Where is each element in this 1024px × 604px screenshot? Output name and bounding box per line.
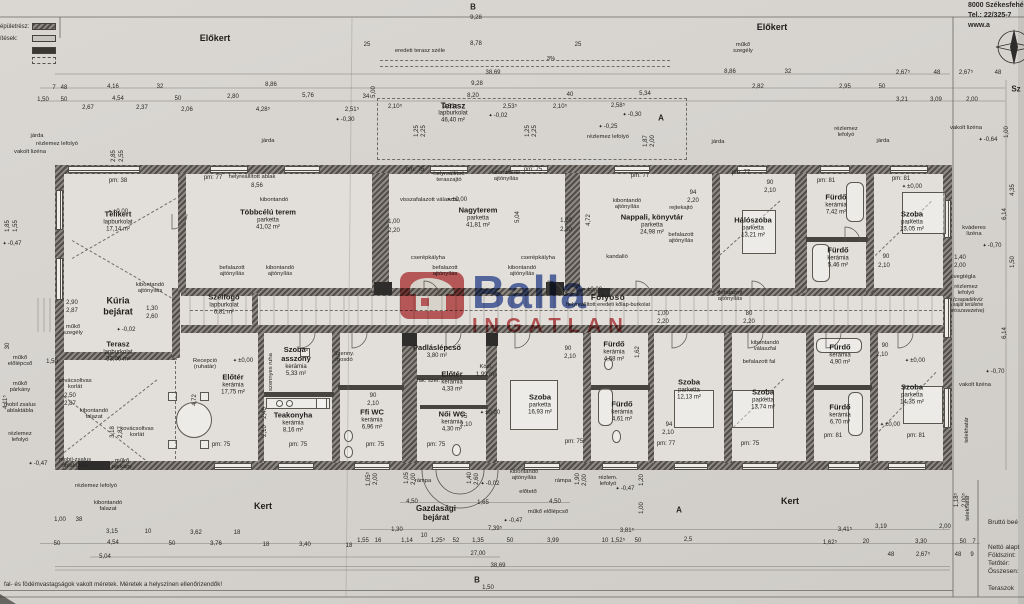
dimension-label: -0,47	[616, 486, 635, 492]
annotation-label: szennyes ruha	[268, 353, 274, 391]
room-name: Nappali, könyvtár	[621, 214, 684, 223]
room-area: 14,35 m²	[900, 399, 924, 406]
wall-segment	[402, 333, 417, 463]
room-area: 3,80 m²	[413, 353, 461, 360]
summary-row: Földszint:	[988, 552, 1016, 560]
room-area: 13,74 m²	[751, 404, 775, 411]
dimension-label: 6,14	[1002, 208, 1008, 220]
furniture	[344, 446, 353, 458]
dimension-label: 3,21	[896, 97, 908, 103]
room-label: Szoba- asszonykerámia5,33 m²	[281, 346, 311, 378]
room-label: Padláslépcső3,80 m²	[413, 344, 461, 360]
dimension-label: 1,40	[467, 472, 473, 484]
furniture	[200, 392, 209, 401]
annotation-label: helyreállított teraszajtó	[433, 171, 464, 184]
watermark-brand: Balla	[472, 272, 630, 313]
dimension-label: 2,87	[118, 426, 124, 438]
door-arc	[752, 281, 767, 296]
room-name: Kúria bejárat	[103, 295, 133, 316]
room-area: 6,81 m²	[208, 309, 239, 316]
dimension-label: 2,67	[82, 105, 94, 111]
watermark-text: Balla INGATLAN	[472, 272, 630, 338]
room-finish: parketta	[751, 397, 775, 404]
room-finish: kerámia	[441, 379, 462, 386]
dimension-label: 75	[461, 414, 468, 420]
dimension-label: 2,67⁵	[916, 552, 930, 558]
legend-swatch-solid	[32, 47, 56, 54]
room-name: Előtér	[441, 371, 462, 380]
room-area: 4,30 m²	[439, 426, 466, 433]
room-finish: lapburkolat	[103, 219, 132, 226]
room-finish: kerámia	[360, 417, 384, 424]
legend-label-existing: épületrész:	[0, 24, 29, 30]
outdoor-name: Előkert	[757, 22, 788, 32]
dimension-label: 1,50	[37, 97, 49, 103]
room-label: Nagyteremparketta41,81 m²	[459, 207, 498, 230]
room-area: 33,06 m²	[103, 356, 132, 363]
window	[888, 463, 926, 470]
dimension-label: 6,14	[1002, 327, 1008, 339]
dimension-label: 2,00	[939, 524, 951, 530]
dimension-label: pm: 81	[892, 176, 910, 182]
room-finish: lapburkolat	[208, 302, 239, 309]
dimension-label: -0,30	[623, 112, 642, 118]
furniture	[316, 398, 327, 409]
dimension-label: 4,50	[406, 499, 418, 505]
wall-segment	[55, 352, 177, 360]
dimension-label: 34	[363, 94, 370, 100]
dimension-label: 38,69	[485, 70, 500, 76]
furniture	[598, 388, 613, 426]
dimension-label: pm: 77	[732, 170, 750, 176]
annotation-label: kandalló	[606, 254, 628, 260]
room-name: Szoba	[900, 384, 924, 393]
dimension-label: 2,10	[878, 263, 890, 269]
dimension-label: 3,99	[547, 538, 559, 544]
dimension-label: Sz	[1011, 85, 1020, 94]
room-label: Télikertlapburkolat17,14 m²	[103, 211, 132, 234]
dimension-label: 2,10⁵	[553, 104, 567, 110]
legend-swatch-light	[32, 35, 56, 42]
compass-icon	[996, 29, 1024, 65]
dimension-label: 48	[61, 85, 68, 91]
dimension-label: 2,51⁵	[345, 107, 359, 113]
room-label: Teraszlapburkolat33,06 m²	[103, 341, 132, 364]
room-finish: kerámia	[603, 349, 624, 356]
annotation-label: rézlemez lefolyó	[587, 134, 629, 140]
dimension-label: 7,39⁵	[488, 526, 502, 532]
dimension-label: 80	[746, 311, 753, 317]
dimension-label: 1,30	[146, 306, 158, 312]
annotation-label: helyreállított ablak	[229, 174, 276, 180]
furniture	[266, 398, 330, 409]
outdoor-name: Gazdasági bejárat	[416, 504, 456, 522]
dimension-label: 50	[879, 84, 886, 90]
furniture	[276, 400, 283, 407]
door-arc	[352, 333, 367, 348]
furniture	[300, 348, 310, 357]
dimension-label: 1,87	[643, 135, 649, 147]
dimension-label: 2,20	[657, 319, 669, 325]
window	[432, 463, 470, 470]
furniture	[168, 392, 177, 401]
dimension-label: 2,10⁵	[388, 104, 402, 110]
dimension-label: 90	[882, 343, 889, 349]
room-area: 41,81 m²	[459, 222, 498, 229]
wall-segment	[943, 165, 952, 470]
dimension-label: pm: 81	[817, 178, 835, 184]
window	[820, 166, 850, 173]
disclaimer-note: fal- és födémvastagságok vakolt méretek.…	[4, 581, 222, 588]
annotation-label: kibontandó falazat	[94, 500, 122, 513]
window	[354, 463, 390, 470]
annotation-label: kibontandó ajtónyílás	[266, 265, 294, 278]
room-label: Szobaparketta14,35 m²	[900, 384, 924, 407]
window	[56, 258, 63, 300]
dimension-label: 50	[635, 538, 642, 544]
dimension-label: 4,72	[586, 214, 592, 226]
room-finish: kerámia	[221, 382, 245, 389]
furniture	[846, 182, 864, 222]
dimension-label: 3,40	[299, 542, 311, 548]
room-finish: kerámia	[827, 255, 848, 262]
room-name: Hálószoba	[734, 217, 772, 226]
furniture	[200, 440, 209, 449]
dimension-label: pm: 75	[406, 167, 424, 173]
room-area: 12,13 m²	[677, 394, 701, 401]
dimension-label: 5,76	[302, 93, 314, 99]
furniture	[452, 444, 461, 456]
window	[614, 166, 650, 173]
dashed-outline	[60, 356, 176, 464]
furniture	[604, 358, 613, 370]
dimension-label: 2,10	[460, 422, 472, 428]
dashed-line	[380, 66, 670, 67]
watermark-subtitle: INGATLAN	[472, 315, 630, 338]
room-label: Kúria bejárat	[103, 295, 133, 316]
dimension-label: 7	[52, 85, 55, 91]
dimension-label: 1,52⁵	[611, 538, 625, 544]
dimension-label: 20	[863, 539, 870, 545]
dimension-label: 8,86	[265, 82, 277, 88]
dimension-label: 1,50	[482, 585, 494, 591]
outdoor-area: 46,40 m²	[438, 118, 467, 125]
dimension-label: B	[474, 576, 480, 585]
window	[278, 463, 314, 470]
room-label: Hálószobaparketta13,21 m²	[734, 217, 772, 240]
room-name: Télikert	[103, 211, 132, 220]
dashed-line	[64, 379, 158, 452]
room-label: Fürdőkerámia4,90 m²	[829, 344, 850, 367]
room-label: Fürdőkerámia4,61 m²	[611, 401, 632, 424]
dimension-label: 50	[175, 96, 182, 102]
dimension-label: 18	[234, 530, 241, 536]
room-finish: kerámia	[825, 202, 846, 209]
room-label: Fürdőkerámia4,58 m²	[603, 341, 624, 364]
dashed-line	[72, 240, 176, 301]
dimension-label: 4,54	[112, 96, 124, 102]
annotation-label: Szenny. mosdó	[334, 351, 355, 364]
dimension-label: ±0,00	[108, 209, 128, 215]
annotation-label: cserépkályha	[411, 255, 445, 261]
dimension-label: 16	[375, 538, 382, 544]
dimension-label: pm: 75	[427, 442, 445, 448]
annotation-label: műkő előlépcső	[528, 509, 568, 515]
dashed-line	[868, 201, 932, 263]
dimension-label: 32	[785, 69, 792, 75]
legend-label-new: ítések:	[0, 36, 18, 42]
window	[602, 463, 638, 470]
dimension-label: 2,00	[411, 473, 417, 485]
annotation-label: rézlemez lefolyó	[75, 483, 117, 489]
dashed-line	[872, 372, 937, 439]
dimension-label: 90	[883, 254, 890, 260]
room-finish: kerámia	[829, 352, 850, 359]
annotation-label: kibontandó ajtónyílás	[613, 198, 641, 211]
dimension-label: 25	[575, 42, 582, 48]
dimension-label: pm: 81	[824, 433, 842, 439]
annotation-label: kibontandó ajtónyílás	[492, 170, 520, 183]
room-name: Padláslépcső	[413, 344, 461, 353]
dimension-label: -0,25	[599, 124, 618, 130]
dimension-label: 1,90	[575, 473, 581, 485]
dimension-label: 2,20	[388, 228, 400, 234]
furniture	[168, 440, 177, 449]
dimension-label: 90	[565, 346, 572, 352]
annotation-label: kibontandó	[260, 197, 288, 203]
dimension-label: 2,67⁵	[959, 70, 973, 76]
annotation-label: rézlemez lefolyó	[834, 126, 858, 139]
dimension-label: 9	[970, 552, 973, 558]
wall-segment	[55, 165, 64, 470]
room-area: 5,46 m²	[827, 262, 848, 269]
window	[524, 463, 560, 470]
window	[890, 166, 928, 173]
window	[737, 166, 767, 173]
dimension-label: ±0,00	[902, 184, 922, 190]
annotation-label: üvegtégla	[950, 274, 975, 280]
dimension-label: 2,10	[662, 430, 674, 436]
dashed-line	[72, 198, 176, 259]
dimension-label: -0,70	[983, 243, 1002, 249]
annotation-label: rézlemez lefolyó	[36, 141, 78, 147]
wall-segment	[252, 293, 258, 330]
furniture	[176, 402, 212, 438]
wall-segment	[258, 333, 264, 463]
dimension-label: 2,00	[582, 474, 588, 486]
dimension-label: 50	[61, 97, 68, 103]
room-area: 17,14 m²	[103, 226, 132, 233]
furniture	[674, 390, 714, 428]
dimension-label: 2,20	[687, 198, 699, 204]
dimension-label: 3,81⁵	[620, 528, 634, 534]
dimension-label: 94	[666, 422, 673, 428]
wall-segment	[55, 165, 952, 174]
outdoor-area-label: Előkert	[200, 33, 231, 43]
dashed-outline	[377, 98, 687, 160]
dimension-label: 2,10	[367, 401, 379, 407]
window	[944, 388, 951, 428]
dimension-label: 48	[888, 552, 895, 558]
dimension-label: 1,55	[357, 538, 369, 544]
annotation-label: műkő szegély	[63, 324, 83, 337]
dimension-label: 48	[995, 70, 1002, 76]
window	[742, 463, 778, 470]
dimension-label: 8,78	[470, 41, 482, 47]
annotation-label: rézlemez lefolyó	[954, 284, 978, 297]
annotation-label: befalazott ajtónyílás	[668, 232, 693, 245]
dimension-label: 1,18⁵	[954, 493, 960, 507]
dimension-label: 3,30	[915, 539, 927, 545]
dimension-label: 2,10	[262, 425, 268, 437]
dimension-label: 2,55	[119, 150, 125, 162]
dimension-label: 2,20	[560, 227, 572, 233]
room-area: 7,42 m²	[825, 209, 846, 216]
annotation-label: kváderes lizéna	[962, 225, 986, 238]
dimension-label: 4,54	[107, 540, 119, 546]
outdoor-area-label: Kert	[254, 501, 272, 511]
dimension-label: -0,47	[29, 461, 48, 467]
room-finish: parketta	[900, 392, 924, 399]
dimension-label: 1,55	[13, 220, 19, 232]
dimension-label: ±0,00	[447, 197, 467, 203]
annotation-label: műkő párkány	[10, 381, 31, 394]
dimension-label: 3,76	[210, 541, 222, 547]
room-area: 13,05 m²	[900, 226, 924, 233]
annotation-label: járda	[712, 139, 725, 145]
wall-segment	[55, 461, 952, 470]
dimension-label: 5,04	[99, 554, 111, 560]
annotation-label: vakolt lizéna	[959, 382, 991, 388]
annotation-label: kibontandó falazat	[80, 408, 108, 421]
room-name: Szoba	[751, 389, 775, 398]
dimension-label: ±0,00	[480, 410, 500, 416]
dimension-label: 40	[567, 92, 574, 98]
dimension-label: 2,00	[373, 473, 379, 485]
dimension-label: ±0,00	[233, 358, 253, 364]
dimension-label: 1,35	[472, 538, 484, 544]
dimension-label: 1,25⁵	[431, 538, 445, 544]
dimension-label: 1,00	[388, 219, 400, 225]
annotation-label: rámpa	[555, 478, 571, 484]
dimension-label: 8,56	[251, 183, 263, 189]
legend-swatch-dashed	[32, 57, 56, 64]
room-name: Szélfogó	[208, 294, 239, 303]
window	[944, 298, 951, 338]
room-name: Szoba	[900, 211, 924, 220]
room-name: Többcélú terem	[240, 209, 296, 218]
annotation-label: műkő szegély	[733, 42, 753, 55]
annotation-label: kibontandó ajtónyílás	[510, 469, 538, 482]
annotation-label: mobil-zsalus ablaktábla	[59, 457, 91, 470]
dimension-label: 3,19	[875, 524, 887, 530]
annotation-label: kovácsoltvas korlát	[58, 378, 91, 391]
window	[674, 463, 708, 470]
dimension-label: 4,11⁵	[3, 395, 9, 409]
annotation-label: járda	[262, 138, 275, 144]
dimension-label: 5,04	[515, 211, 521, 223]
room-name: Fürdő	[825, 194, 846, 203]
annotation-label: vakolt lizéna	[950, 125, 982, 131]
dimension-label: 1,62⁵	[823, 540, 837, 546]
furniture	[510, 380, 558, 430]
room-area: 17,75 m²	[221, 389, 245, 396]
window	[944, 200, 951, 238]
room-label: Nappali, könyvtárparketta24,98 m²	[621, 214, 684, 237]
room-label: Többcélú teremparketta41,02 m²	[240, 209, 296, 232]
legend-swatch-hatched	[32, 23, 56, 30]
room-name: Fürdő	[829, 344, 850, 353]
wall-segment	[814, 385, 872, 390]
dimension-label: 3,09	[930, 97, 942, 103]
dimension-label: 2,10	[564, 354, 576, 360]
dimension-label: 2,67⁵	[896, 70, 910, 76]
dimension-label: 4,35	[1010, 184, 1016, 196]
outdoor-name: Kert	[254, 501, 272, 511]
dimension-label: pm: 77	[657, 441, 675, 447]
dimension-label: 90	[370, 393, 377, 399]
wall-segment	[795, 173, 807, 293]
dimension-label: 1,40	[954, 255, 966, 261]
room-label: Fürdőkerámia6,70 m²	[829, 404, 850, 427]
furniture	[902, 192, 946, 234]
wall-segment	[486, 333, 497, 463]
dimension-label: 4,72	[192, 394, 198, 406]
dimension-label: 1,50	[46, 359, 58, 365]
annotation-label: kibontandó ajtónyílás	[136, 282, 164, 295]
room-area: 4,61 m²	[611, 416, 632, 423]
dimension-label: 48	[934, 70, 941, 76]
annotation-label: befalazott fal	[743, 359, 776, 365]
annotation-label: műkő párkány	[112, 458, 133, 471]
dimension-label: 4,28⁵	[256, 107, 270, 113]
furniture	[286, 400, 293, 407]
door-arc	[845, 227, 860, 242]
dimension-label: 1,05⁵	[366, 472, 372, 486]
dimension-label: 2,53⁵	[503, 104, 517, 110]
scan-edge-shadow	[1018, 0, 1024, 604]
annotation-label: 3%	[547, 56, 555, 62]
dimension-label: 2,87	[66, 308, 78, 314]
dimension-label: 1,65	[477, 500, 489, 506]
room-area: 4,90 m²	[829, 359, 850, 366]
dimension-label: 3,18	[110, 426, 116, 438]
dimension-label: 3,15	[106, 529, 118, 535]
dimension-label: 1,30	[391, 527, 403, 533]
room-name: Szoba	[677, 379, 701, 388]
dimension-label: 2,00	[650, 135, 656, 147]
room-name: Előtér	[221, 374, 245, 383]
page-fold-line	[346, 17, 352, 597]
summary-row: Bruttó beé	[988, 519, 1018, 527]
wall-segment	[870, 333, 878, 463]
wall-segment	[420, 405, 488, 409]
dimension-label: 2,50	[64, 393, 76, 399]
room-finish: parketta	[240, 217, 296, 224]
wall-segment	[178, 173, 186, 293]
dimension-label: 1,20	[639, 474, 645, 486]
dimension-label: 2,82	[752, 84, 764, 90]
room-name: Teakonyha	[274, 412, 313, 421]
annotation-label: Recepció (ruhatár)	[193, 358, 217, 371]
room-area: 6,70 m²	[829, 419, 850, 426]
window	[284, 166, 320, 173]
dimension-label: A	[658, 114, 664, 123]
room-finish: kerámia	[829, 412, 850, 419]
room-name: Terasz	[103, 341, 132, 350]
annotation-label: rámpa	[415, 478, 431, 484]
dimension-label: 1,99 m²	[476, 372, 496, 378]
